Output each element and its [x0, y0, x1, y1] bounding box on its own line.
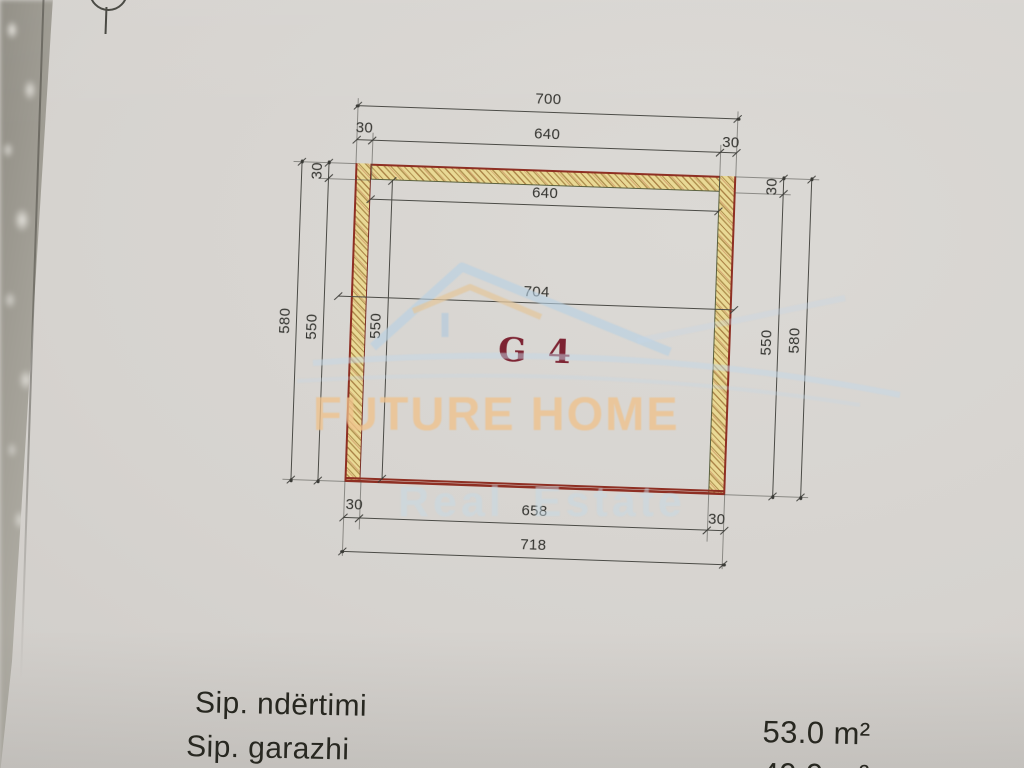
dim-label-inner-height: 550 [367, 313, 385, 340]
dimension-line-inner-height: 550 [382, 180, 394, 479]
axis-marker-stem [105, 7, 108, 34]
dot-marker [327, 160, 331, 164]
dim-label-bottom-wall-right: 30 [708, 511, 726, 529]
dim-label-right-total: 580 [786, 327, 804, 354]
dot-marker [782, 176, 786, 180]
dim-label-left-clear: 550 [303, 313, 321, 340]
dot-marker [356, 104, 360, 108]
dim-label-right-clear: 550 [758, 329, 776, 356]
extension-line [724, 494, 808, 498]
dimension-line-right-chain: 30 550 [772, 178, 784, 497]
dimension-line-inner-width: 640 [370, 199, 719, 212]
dimension-line-bottom-chain: 30 658 30 [343, 517, 725, 532]
area-info: Sip. ndërtimi 53.0 m² Sip. garazhi 49.9 … [185, 686, 948, 768]
dim-label-top-wall-right: 30 [722, 134, 740, 152]
dim-label-bottom-clear: 658 [521, 502, 548, 520]
axis-marker-icon [89, 0, 128, 11]
dimension-line-mid-width: 704 [338, 296, 735, 311]
dim-label-top-clear: 640 [534, 125, 561, 143]
dot-marker [771, 495, 775, 499]
dim-label-bottom-total: 718 [520, 536, 547, 554]
dot-marker [289, 478, 293, 482]
dot-marker [316, 479, 320, 483]
dim-label-inner-width: 640 [532, 184, 559, 202]
dimension-line-top-chain: 30 640 30 [356, 139, 737, 154]
dot-marker [736, 117, 740, 121]
dim-label-right-wall: 30 [763, 178, 781, 196]
floor-plan-drawing: 700 30 640 30 640 704 580 30 [261, 65, 838, 584]
area-value-garazhi: 49.9 m² [761, 756, 870, 768]
dimension-line-bottom-total: 718 [342, 551, 724, 566]
dimension-line-left-chain: 30 550 [317, 162, 329, 481]
dim-label-top-wall-left: 30 [355, 119, 373, 137]
wall-right [708, 176, 736, 495]
area-label-garazhi: Sip. garazhi [186, 730, 350, 767]
dot-marker [810, 177, 814, 181]
dot-marker [300, 159, 304, 163]
dim-label-bottom-wall-left: 30 [345, 496, 363, 514]
floor-plan-photo: 700 30 640 30 640 704 580 30 [0, 0, 1024, 768]
dim-label-mid-width: 704 [523, 283, 550, 301]
dot-marker [799, 496, 803, 500]
dim-label-left-wall: 30 [308, 162, 326, 180]
dimension-line-right-total: 580 [800, 179, 812, 498]
area-label-ndertimi: Sip. ndërtimi [195, 686, 368, 724]
dim-label-top-total: 700 [535, 90, 562, 108]
dim-label-left-total: 580 [276, 307, 294, 334]
dimension-line-top-total: 700 [358, 105, 739, 120]
dot-marker [722, 563, 726, 567]
area-value-ndertimi: 53.0 m² [762, 714, 871, 752]
dot-marker [340, 550, 344, 554]
garage-front-line [344, 477, 725, 495]
room-label: G 4 [498, 330, 577, 372]
dimension-line-left-total: 580 [290, 161, 302, 480]
